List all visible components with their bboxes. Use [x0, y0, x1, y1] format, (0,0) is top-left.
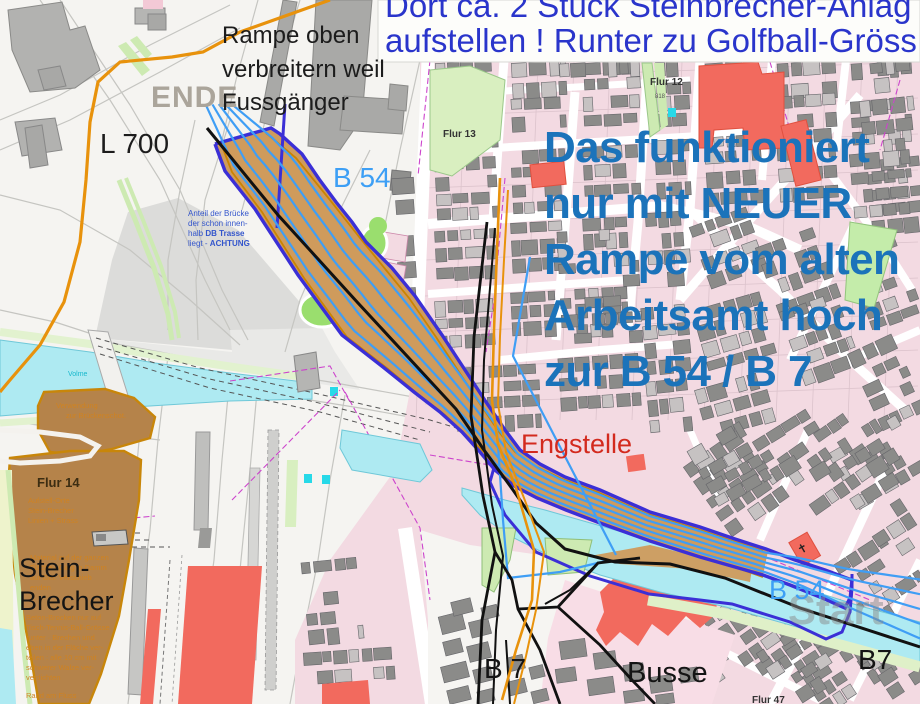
- svg-text:Rampe oben: Rampe oben: [222, 22, 359, 49]
- svg-text:B 54: B 54: [769, 575, 825, 605]
- svg-text:Rand am Fluss: Rand am Fluss: [26, 691, 77, 700]
- svg-text:der schon innen-: der schon innen-: [188, 219, 248, 228]
- svg-text:halb DB Trasse: halb DB Trasse: [188, 229, 245, 238]
- svg-text:L 700: L 700: [100, 128, 169, 159]
- svg-text:aufstellen ! Runter zu Golfbal: aufstellen ! Runter zu Golfball-Gröss: [385, 22, 917, 59]
- svg-text:Brecher: Brecher: [19, 586, 114, 616]
- svg-text:Volme: Volme: [68, 371, 88, 378]
- svg-text:Rampe vom alten: Rampe vom alten: [544, 235, 899, 284]
- svg-text:zur B 54 / B 7: zur B 54 / B 7: [544, 347, 812, 396]
- svg-text:Tisch-Tennis-Ball-Grösse: Tisch-Tennis-Ball-Grösse: [26, 623, 110, 632]
- svg-text:Aufstell-Orte: Aufstell-Orte: [28, 496, 70, 505]
- svg-text:Engstelle: Engstelle: [521, 429, 632, 459]
- svg-text:teilen : alle 10 cm mit: teilen : alle 10 cm mit: [26, 653, 97, 662]
- svg-text:Anteil der Brücke: Anteil der Brücke: [188, 209, 249, 218]
- svg-text:liegt - ACHTUNG: liegt - ACHTUNG: [188, 239, 250, 248]
- svg-text:schwerer Walze ver-: schwerer Walze ver-: [26, 663, 95, 672]
- svg-text:Linien + Strass: Linien + Strass: [28, 516, 78, 525]
- svg-text:Flur 12: Flur 12: [650, 77, 683, 88]
- svg-text:B 7: B 7: [484, 653, 526, 684]
- svg-text:Busse: Busse: [627, 657, 708, 689]
- svg-text:Stein-: Stein-: [19, 553, 90, 583]
- svg-text:eben in der Fläche ver-: eben in der Fläche ver-: [26, 643, 104, 652]
- svg-text:Dort ca. 2 Stück Steinbrecher-: Dort ca. 2 Stück Steinbrecher-Anlag: [385, 0, 911, 24]
- svg-text:Flur 47: Flur 47: [752, 695, 785, 704]
- svg-text:nur mit NEUER: nur mit NEUER: [544, 179, 852, 228]
- svg-text:Flur 13: Flur 13: [443, 129, 476, 140]
- svg-text:verbreitern weil: verbreitern weil: [222, 56, 385, 83]
- svg-text:Flur 14: Flur 14: [37, 475, 80, 490]
- svg-text:818: 818: [655, 94, 666, 100]
- svg-text:B7: B7: [858, 644, 892, 675]
- svg-text:Das funktioniert: Das funktioniert: [544, 123, 870, 172]
- svg-text:Verwendung: Verwendung: [56, 401, 98, 410]
- svg-text:zur Brückenschot.: zur Brückenschot.: [66, 411, 126, 420]
- svg-text:Arbeitsamt hoch: Arbeitsamt hoch: [544, 291, 882, 340]
- svg-text:runter · Brechen und: runter · Brechen und: [26, 633, 95, 642]
- svg-text:Fussgänger: Fussgänger: [222, 89, 349, 116]
- svg-text:verdichten: verdichten: [26, 673, 61, 682]
- svg-text:B 54: B 54: [333, 162, 391, 193]
- svg-text:Stein-Brecher: Stein-Brecher: [28, 506, 74, 515]
